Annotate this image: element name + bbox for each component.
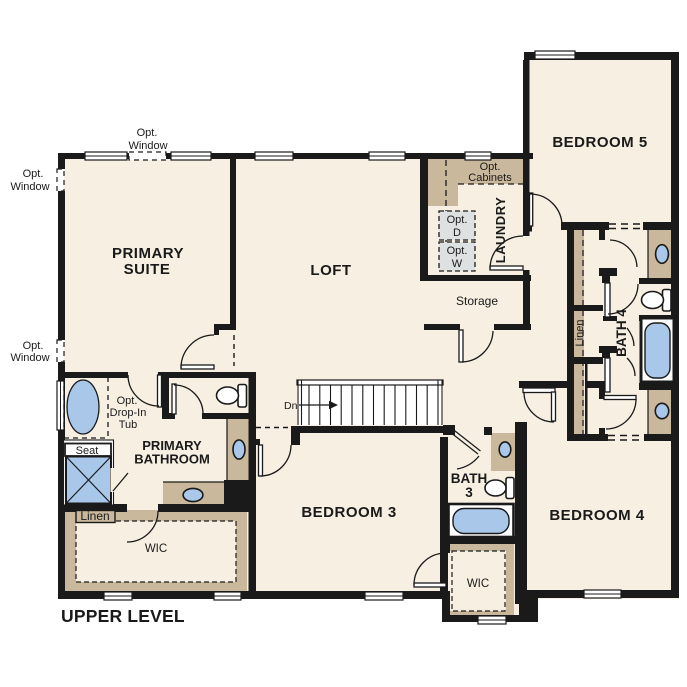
svg-text:PRIMARY: PRIMARY: [112, 245, 184, 262]
svg-text:Opt.: Opt.: [447, 214, 468, 226]
svg-text:Drop-In: Drop-In: [110, 407, 147, 419]
svg-text:Window: Window: [10, 352, 49, 364]
svg-text:3: 3: [465, 485, 473, 500]
svg-text:BEDROOM 4: BEDROOM 4: [549, 507, 645, 524]
svg-text:Seat: Seat: [76, 445, 99, 457]
svg-text:Linen: Linen: [80, 509, 109, 523]
svg-text:Linen: Linen: [574, 320, 586, 347]
svg-text:SUITE: SUITE: [124, 261, 171, 278]
svg-text:Opt.: Opt.: [117, 395, 138, 407]
svg-text:BEDROOM 5: BEDROOM 5: [552, 134, 647, 151]
svg-text:BATHROOM: BATHROOM: [134, 452, 210, 467]
svg-text:WIC: WIC: [467, 578, 489, 590]
svg-text:Opt.: Opt.: [447, 245, 468, 257]
svg-text:Cabinets: Cabinets: [468, 172, 512, 184]
svg-text:LOFT: LOFT: [310, 262, 351, 279]
svg-text:BATH 4: BATH 4: [614, 309, 629, 357]
svg-text:BEDROOM 3: BEDROOM 3: [301, 504, 396, 521]
svg-text:Opt.: Opt.: [137, 127, 158, 139]
svg-text:Dn: Dn: [284, 400, 298, 412]
svg-text:Window: Window: [10, 181, 49, 193]
svg-text:Tub: Tub: [119, 419, 138, 431]
svg-text:Opt.: Opt.: [23, 168, 44, 180]
svg-text:LAUNDRY: LAUNDRY: [493, 197, 508, 264]
svg-text:Opt.: Opt.: [23, 340, 44, 352]
svg-text:Window: Window: [128, 140, 167, 152]
svg-text:BATH: BATH: [451, 471, 488, 486]
svg-text:W: W: [452, 258, 463, 270]
svg-text:WIC: WIC: [145, 543, 167, 555]
svg-text:D: D: [453, 227, 461, 239]
svg-text:Storage: Storage: [456, 294, 498, 308]
svg-text:UPPER LEVEL: UPPER LEVEL: [61, 606, 185, 626]
